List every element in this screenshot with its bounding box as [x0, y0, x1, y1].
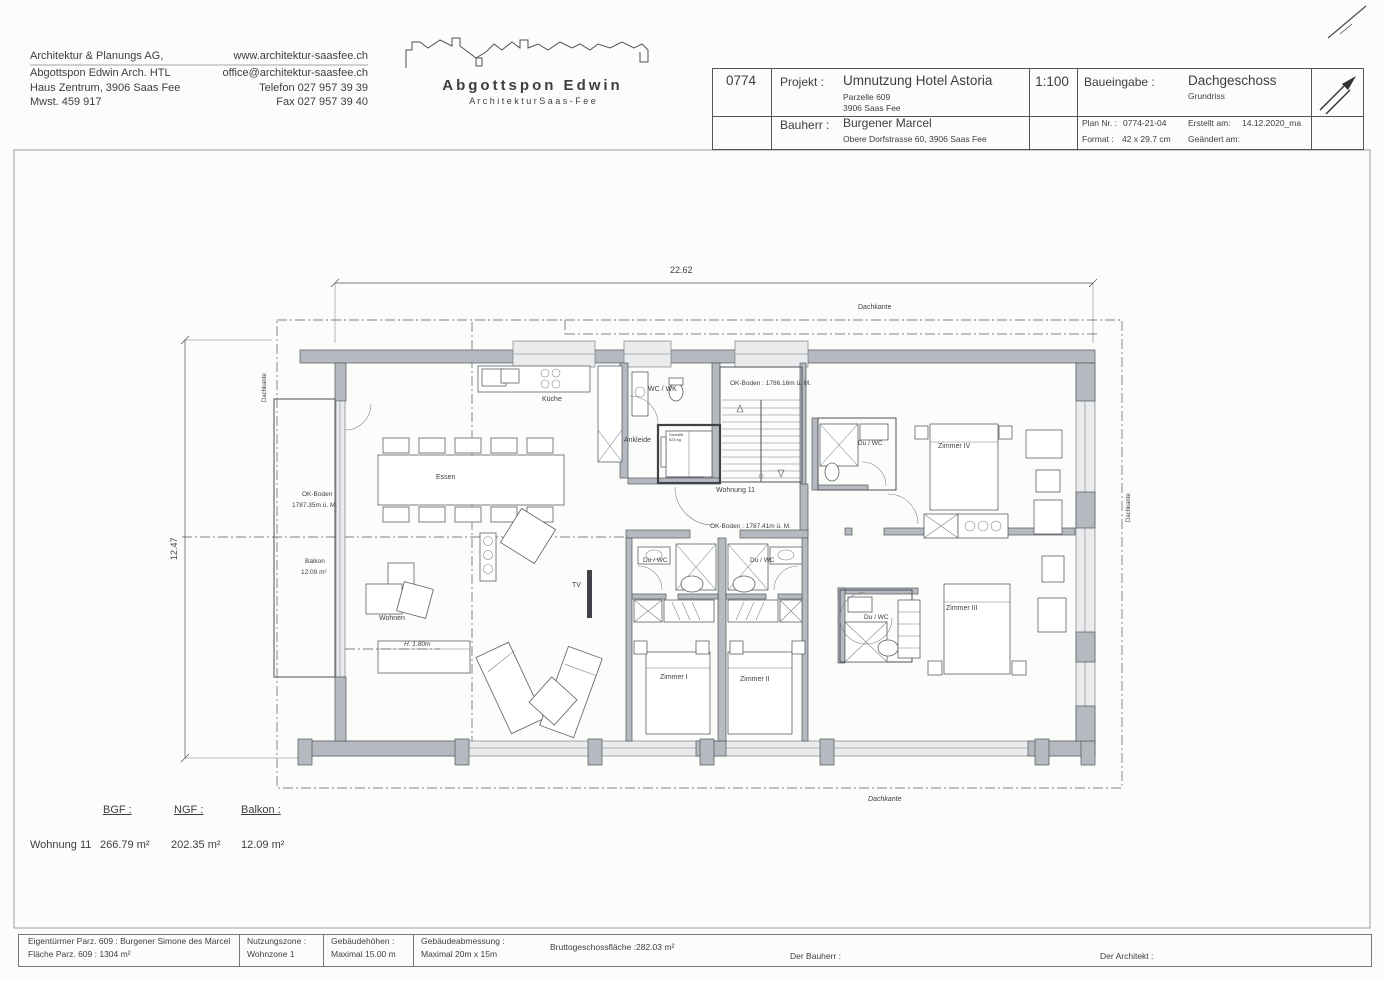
- dimension-width: 22.62: [670, 266, 693, 276]
- ok-boden-stair: OK-Boden : 1786.16m ü. M.: [730, 380, 811, 387]
- bedroom-4-furniture: [818, 418, 1062, 538]
- balcony-outline: [274, 399, 335, 677]
- room-wc-wk: WC / WK: [648, 386, 677, 394]
- plan-sheet: Architektur & Planungs AG, Abgottspon Ed…: [0, 0, 1384, 982]
- footer-dim-label: Gebäudeabmessung :: [421, 937, 505, 946]
- wc-wk-fixtures: [632, 372, 683, 416]
- footer-height-value: Maximal 15.00 m: [331, 950, 396, 959]
- phase-title: Dachgeschoss: [1188, 74, 1277, 89]
- bauherr-name: Burgener Marcel: [843, 117, 932, 130]
- projekt-title: Umnutzung Hotel Astoria: [843, 74, 992, 89]
- elevator: [658, 425, 720, 483]
- baueingabe-label: Baueingabe :: [1084, 76, 1155, 89]
- footer-height-label: Gebäudehöhen :: [331, 937, 394, 946]
- bauherr-label: Bauherr :: [780, 119, 829, 132]
- geaendert-label: Geändert am:: [1188, 135, 1240, 144]
- logo-subtitle: A r c h i t e k t u r S a a s - F e e: [405, 97, 660, 107]
- living-furniture: [345, 508, 602, 737]
- room-zimmer4: Zimmer IV: [938, 443, 970, 451]
- footer-bauherr-sign: Der Bauherr :: [790, 952, 841, 961]
- firm-line4: Mwst. 459 917: [30, 96, 102, 108]
- scale: 1:100: [1028, 75, 1076, 90]
- plan-nr-label: Plan Nr. :: [1082, 119, 1117, 128]
- format-value: 42 x 29.7 cm: [1122, 135, 1171, 144]
- footer-dim-value: Maximal 20m x 15m: [421, 950, 497, 959]
- contact-phone: Telefon 027 957 39 39: [259, 82, 368, 94]
- room-wohnen: Wohnen: [379, 615, 405, 623]
- balkon-area: 12.09 m²: [301, 569, 327, 576]
- footer-parcel-area: Fläche Parz. 609 : 1304 m²: [28, 950, 131, 959]
- room-kueche: Küche: [542, 396, 562, 404]
- tv-label: TV: [572, 582, 581, 590]
- du-wc-mid-right: Du / WC: [750, 557, 775, 564]
- footer-bgf-value: 282.03 m²: [636, 943, 674, 952]
- ok-boden-balkon-2: 1787.35m ü. M.: [292, 502, 337, 509]
- firm-line2: Abgottspon Edwin Arch. HTL: [30, 67, 171, 79]
- footer-zone-value: Wohnzone 1: [247, 950, 295, 959]
- erstellt-value: 14.12.2020_ma: [1242, 119, 1301, 128]
- project-number: 0774: [712, 74, 770, 89]
- logo-name: Abgottspon Edwin: [405, 78, 660, 95]
- du-wc-top-right: Du / WC: [858, 440, 883, 447]
- room-zimmer3: Zimmer III: [946, 605, 978, 613]
- corner-mark: [1328, 6, 1366, 38]
- footer-architekt-sign: Der Architekt :: [1100, 952, 1153, 961]
- firm-line1: Architektur & Planungs AG,: [30, 50, 163, 62]
- ok-boden-mid: OK-Boden : 1787.41m ü. M.: [710, 523, 791, 530]
- summary-row-bgf: 266.79 m²: [100, 839, 150, 851]
- summary-row-name: Wohnung 11: [30, 839, 91, 851]
- summary-header-ngf: NGF :: [174, 804, 203, 816]
- projekt-sub1: Parzelle 609: [843, 93, 890, 102]
- phase-sub: Grundriss: [1188, 92, 1225, 101]
- summary-header-bgf: BGF :: [103, 804, 132, 816]
- dimension-height: 12.47: [170, 537, 180, 560]
- plan-nr-value: 0774-21-04: [1123, 119, 1166, 128]
- balkon-label: Balkon: [305, 558, 325, 565]
- summary-row-ngf: 202.35 m²: [171, 839, 221, 851]
- dachkante-bottom: Dachkante: [868, 796, 901, 804]
- dachkante-top: Dachkante: [858, 304, 891, 312]
- bauherr-sub: Obere Dorfstrasse 60, 3906 Saas Fee: [843, 135, 987, 144]
- format-label: Format :: [1082, 135, 1114, 144]
- projekt-sub2: 3906 Saas Fee: [843, 104, 901, 113]
- room-zimmer2: Zimmer II: [740, 676, 770, 684]
- firm-line3: Haus Zentrum, 3906 Saas Fee: [30, 82, 180, 94]
- footer-bgf-label: Bruttogeschossfläche :: [550, 943, 636, 952]
- ok-boden-balkon-1: OK-Boden: [302, 491, 332, 498]
- du-wc-mid-left: Du / WC: [643, 557, 668, 564]
- contact-web: www.architektur-saasfee.ch: [234, 50, 369, 62]
- erstellt-label: Erstellt am:: [1188, 119, 1231, 128]
- contact-fax: Fax 027 957 39 40: [276, 96, 368, 108]
- footer-owner: Eigentürmer Parz. 609 : Burgener Simone …: [28, 937, 230, 946]
- dachkante-left: Dachkante: [262, 373, 269, 402]
- room-essen: Essen: [436, 474, 455, 482]
- room-ankleide: Ankleide: [624, 437, 651, 445]
- floor-plan: [181, 279, 1122, 788]
- lift-label-2: 625 kg: [669, 438, 681, 442]
- dachkante-right: Dachkante: [1126, 493, 1133, 522]
- h180-label: H. 1.80m: [404, 641, 430, 648]
- wohnung-label: Wohnung 11: [716, 487, 755, 495]
- contact-email: office@architektur-saasfee.ch: [223, 67, 368, 79]
- dining-furniture: [378, 438, 564, 522]
- room-zimmer1: Zimmer I: [660, 674, 688, 682]
- du-wc-bottom-right: Du / WC: [864, 614, 889, 621]
- summary-row-balkon: 12.09 m²: [241, 839, 284, 851]
- summary-header-balkon: Balkon :: [241, 804, 281, 816]
- footer-zone-label: Nutzungszone :: [247, 937, 306, 946]
- projekt-label: Projekt :: [780, 76, 824, 89]
